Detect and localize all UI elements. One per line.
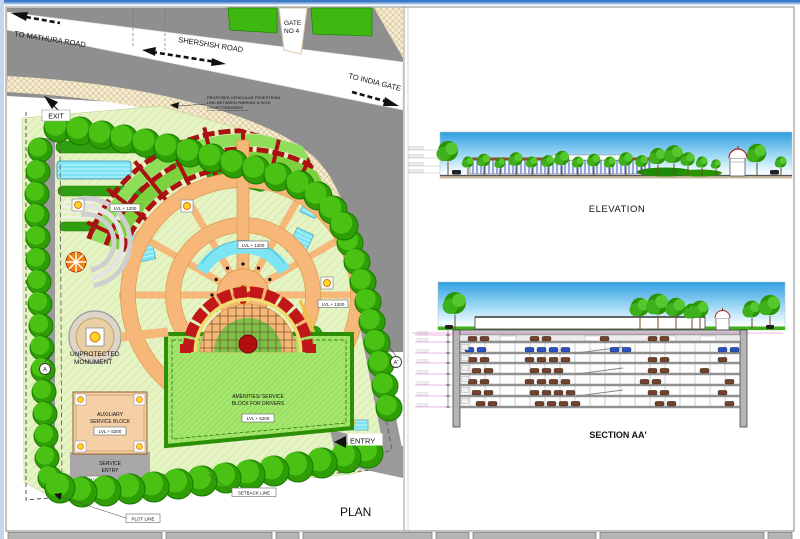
- water-channel: [57, 161, 131, 179]
- monument-label-2: MONUMENT: [74, 359, 112, 366]
- drawing-viewer: TO MATHURA ROAD SHERSHSH ROAD TO INDIA G…: [0, 0, 800, 539]
- drawing-sheet[interactable]: TO MATHURA ROAD SHERSHSH ROAD TO INDIA G…: [6, 7, 794, 539]
- svg-text:COURT PREMISES: COURT PREMISES: [207, 105, 243, 110]
- monument-label-1: UNPROTECTED: [70, 351, 120, 358]
- level-tag-center: LVL + 1200: [242, 243, 265, 248]
- exit-label: EXIT: [48, 114, 64, 121]
- elevation-title: ELEVATION: [589, 204, 645, 215]
- amenities-label-2: BLOCK FOR DRIVERS: [232, 401, 285, 407]
- amenities-label-1: AMENITIES/ SERVICE: [232, 394, 284, 400]
- aux-level-label: LVL + 5200: [99, 429, 122, 434]
- service-entry-label-2: ENTRY: [102, 468, 120, 474]
- level-tag-east: LVL + 1200: [322, 302, 345, 307]
- level-tag-west: LVL + 1200: [114, 206, 137, 211]
- entry-label: ENTRY: [350, 437, 375, 446]
- svg-text:A': A': [393, 361, 398, 367]
- amenities-level-label: LVL + 5200: [247, 416, 270, 421]
- aux-label-2: SERVICE BLOCK: [90, 419, 131, 425]
- plan-title: PLAN: [340, 505, 371, 519]
- svg-text:PLOT LINE: PLOT LINE: [132, 516, 155, 521]
- gate-no4-label-1: GATE: [284, 20, 302, 27]
- title-block-strip: [8, 533, 792, 539]
- svg-text:A: A: [43, 368, 47, 374]
- plan-view: TO MATHURA ROAD SHERSHSH ROAD TO INDIA G…: [7, 8, 403, 523]
- aux-label-1: AUXILIARY: [97, 412, 124, 418]
- svg-text:SETBACK LINE: SETBACK LINE: [238, 490, 270, 495]
- service-entry-label-1: SERVICE: [99, 461, 122, 467]
- gate-no4-label-2: NO 4: [284, 28, 300, 35]
- section-title: SECTION AA': [589, 430, 646, 440]
